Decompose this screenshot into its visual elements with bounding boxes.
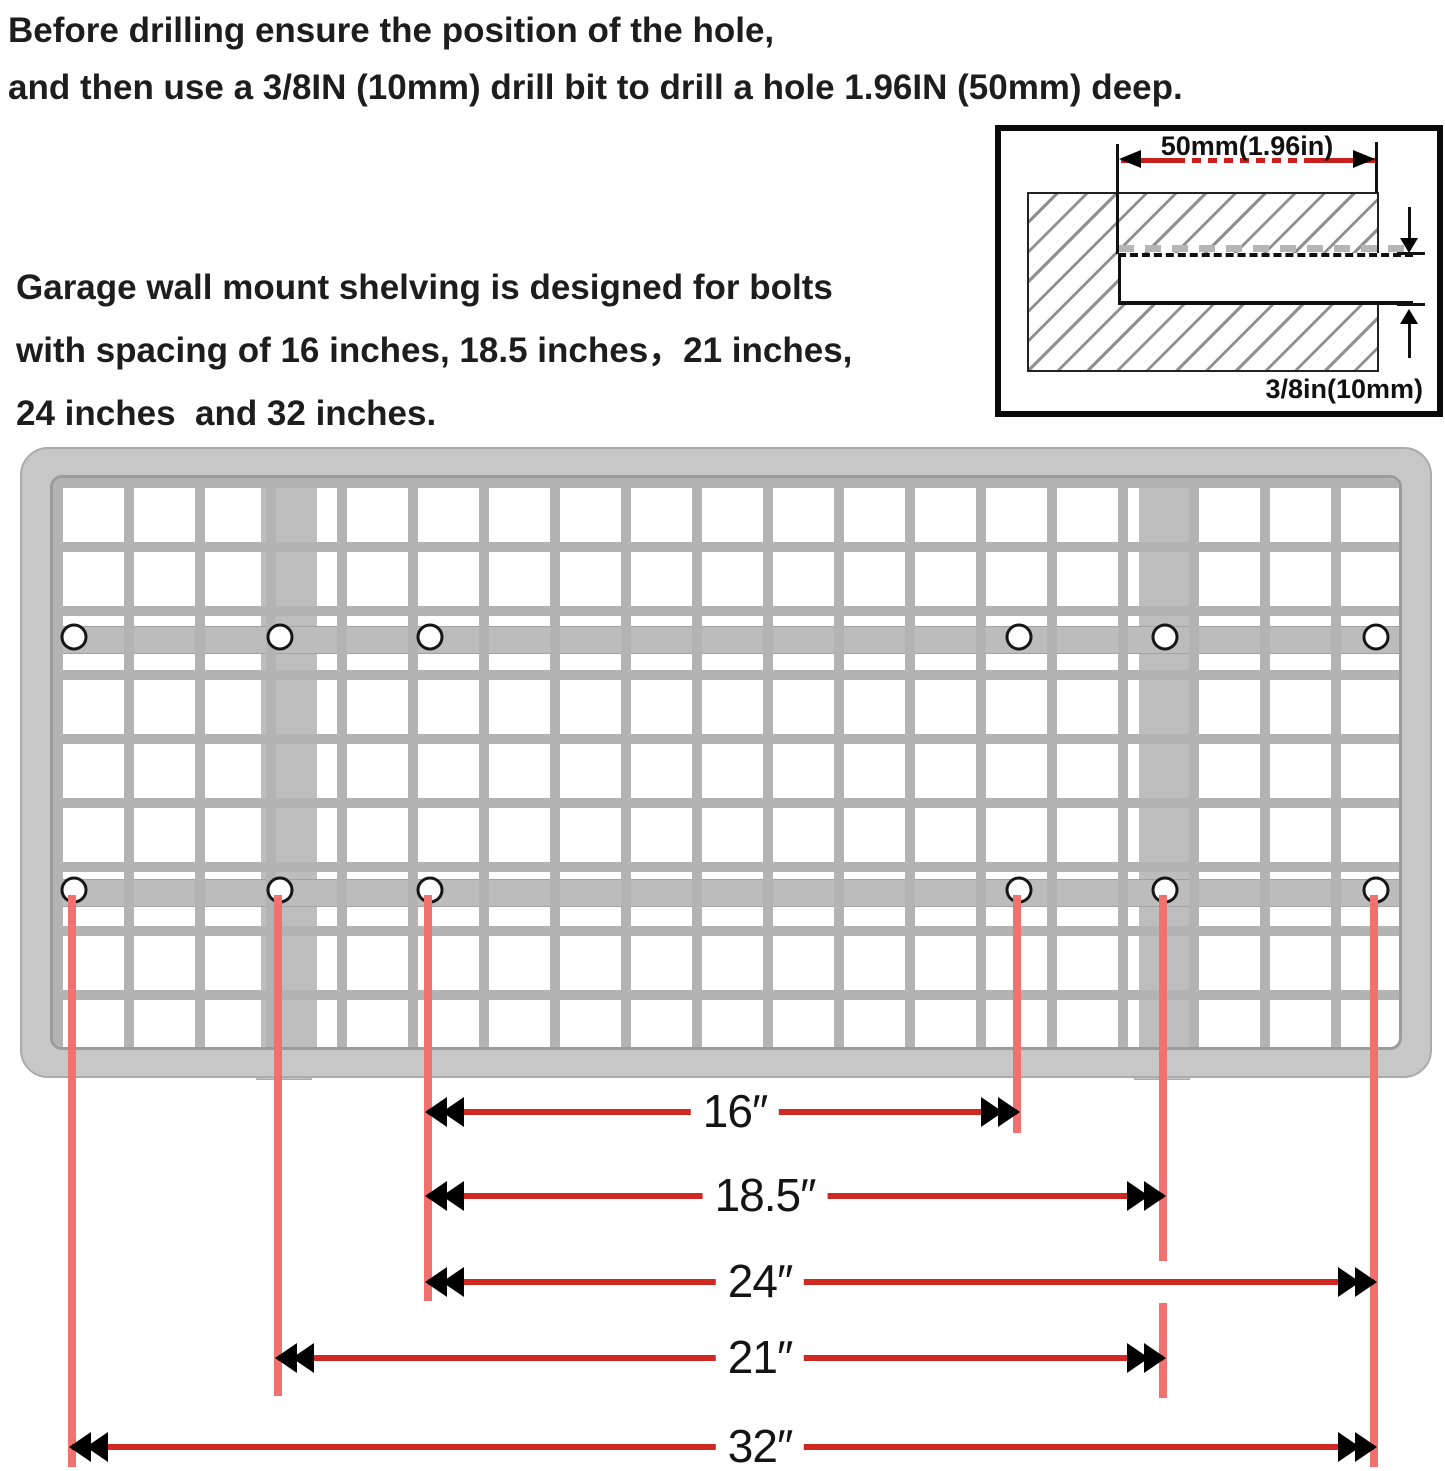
dimension-label: 24″ — [716, 1254, 804, 1308]
instruction-sheet: Before drilling ensure the position of t… — [0, 0, 1445, 1471]
dimension-row-24: 24″ — [428, 1264, 1374, 1300]
diameter-label: 3/8in(10mm) — [1265, 374, 1423, 405]
arrow-up-icon — [1408, 324, 1411, 358]
wire-mesh — [53, 478, 1399, 1047]
arrow-down-icon — [1400, 238, 1418, 253]
mounting-hole — [267, 624, 294, 651]
dimension-line — [428, 1279, 1374, 1285]
arrow-left-icon — [69, 1432, 109, 1462]
drill-detail-inset: 50mm(1.96in) 3/8in(10mm) — [995, 125, 1443, 417]
arrow-right-icon — [1126, 1181, 1166, 1211]
heading-line-2: and then use a 3/8IN (10mm) drill bit to… — [8, 59, 1428, 116]
arrow-up-icon — [1400, 309, 1418, 324]
arrow-left-icon — [425, 1267, 465, 1297]
arrow-right-icon — [1126, 1343, 1166, 1373]
depth-label: 50mm(1.96in) — [1118, 131, 1376, 162]
dimension-label: 32″ — [716, 1419, 804, 1471]
heading-line-1: Before drilling ensure the position of t… — [8, 2, 1428, 59]
dimension-label: 18.5″ — [703, 1168, 828, 1222]
spacing-paragraph: Garage wall mount shelving is designed f… — [16, 256, 996, 445]
dimension-row-32: 32″ — [72, 1429, 1374, 1465]
mounting-hole — [1363, 624, 1390, 651]
mounting-hole — [417, 624, 444, 651]
paragraph-line-1: Garage wall mount shelving is designed f… — [16, 256, 996, 319]
mounting-hole — [61, 624, 88, 651]
shelf-grid — [20, 447, 1432, 1078]
mounting-hole — [1152, 624, 1179, 651]
hole-drop-line — [1370, 895, 1378, 1467]
drill-hole-slot — [1118, 253, 1413, 305]
hole-drop-line — [68, 895, 76, 1467]
drill-guide-dashes — [1118, 245, 1413, 252]
heading: Before drilling ensure the position of t… — [8, 2, 1428, 116]
diameter-tick — [1397, 303, 1425, 306]
paragraph-line-2: with spacing of 16 inches, 18.5 inches，2… — [16, 319, 996, 382]
arrow-right-icon — [1337, 1267, 1377, 1297]
arrow-left-icon — [425, 1181, 465, 1211]
dimension-label: 21″ — [716, 1330, 804, 1384]
hole-drop-line — [274, 895, 282, 1396]
arrow-down-icon — [1408, 207, 1411, 239]
arrow-right-icon — [980, 1097, 1020, 1127]
dimension-row-18-5: 18.5″ — [428, 1178, 1163, 1214]
dimension-row-16: 16″ — [428, 1094, 1017, 1130]
arrow-left-icon — [425, 1097, 465, 1127]
paragraph-line-3: 24 inches and 32 inches. — [16, 382, 996, 445]
dimension-label: 16″ — [691, 1084, 779, 1138]
shelf-grid-inner — [50, 475, 1402, 1050]
dimension-row-21: 21″ — [278, 1340, 1163, 1376]
arrow-left-icon — [275, 1343, 315, 1373]
hole-drop-line — [1159, 895, 1167, 1398]
mounting-hole — [1006, 624, 1033, 651]
arrow-right-icon — [1337, 1432, 1377, 1462]
